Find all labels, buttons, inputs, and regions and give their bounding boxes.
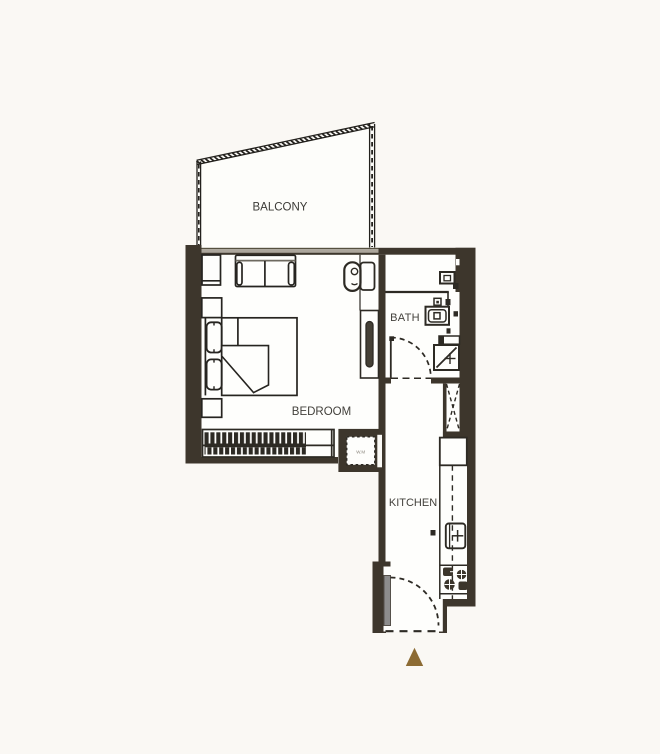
- svg-text:KITCHEN: KITCHEN: [389, 497, 437, 509]
- svg-text:BEDROOM: BEDROOM: [292, 406, 351, 418]
- svg-text:BALCONY: BALCONY: [253, 202, 308, 214]
- svg-text:BATH: BATH: [390, 312, 420, 324]
- svg-text:W.M: W.M: [356, 450, 365, 455]
